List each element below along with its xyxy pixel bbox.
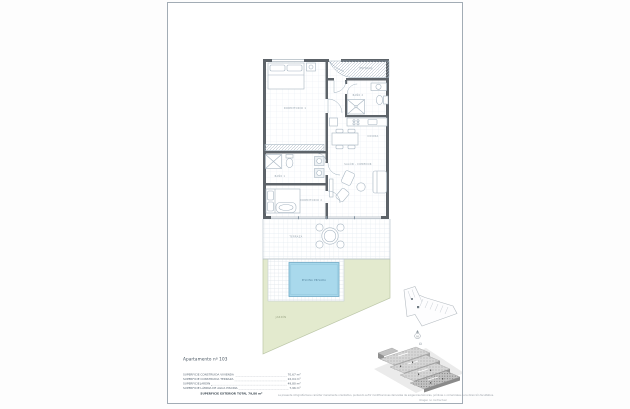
north-indicator: N xyxy=(415,330,421,339)
room-label-terrace: TERRAZA xyxy=(289,236,302,239)
room-label-pool: PISCINA PRIVADA xyxy=(302,279,326,282)
room-label-bedroom1: DORMITORIO 1 xyxy=(284,106,307,110)
room-label-bath1: BAÑO 1 xyxy=(275,175,286,178)
apartment-title: Apartamento nº 103 xyxy=(183,357,301,362)
site-key-plan: N xyxy=(404,287,457,339)
disclaimer-note: Imagen no contractual xyxy=(419,399,459,405)
garden-zone: PISCINA PRIVADA JARDÍN xyxy=(263,259,390,354)
bedroom-window xyxy=(272,59,304,62)
legend-row: SUPERFICIE LÁMINA DE AGUA PISCINA 7,96 m… xyxy=(183,386,301,390)
legend-label: SUPERFICIE LÁMINA DE AGUA PISCINA xyxy=(183,386,238,390)
drawing-sheet: PISCINA PRIVADA JARDÍN TERRAZA xyxy=(167,2,463,404)
room-label-bath2: BAÑO 2 xyxy=(353,94,364,97)
room-label-entry: ENTRADA xyxy=(359,67,372,70)
bedroom2-furniture xyxy=(266,189,300,213)
north-label: N xyxy=(416,334,418,338)
floor-plan: PISCINA PRIVADA JARDÍN TERRAZA xyxy=(168,3,462,403)
room-label-kitchen: COCINA xyxy=(367,135,378,138)
building-render xyxy=(374,343,462,393)
legend-value: 7,96 m² xyxy=(289,386,300,390)
legend: Apartamento nº 103 SUPERFICIE CONSTRUIDA… xyxy=(183,357,303,399)
room-label-living: SALÓN - COMEDOR xyxy=(344,163,372,166)
terrace: TERRAZA xyxy=(263,219,390,259)
plan-sheet-page: PISCINA PRIVADA JARDÍN TERRAZA xyxy=(0,0,630,409)
legend-rows: SUPERFICIE CONSTRUIDA VIVIENDA 70,67 m² … xyxy=(183,373,301,395)
room-label-bedroom2: DORMITORIO 2 xyxy=(300,198,323,202)
